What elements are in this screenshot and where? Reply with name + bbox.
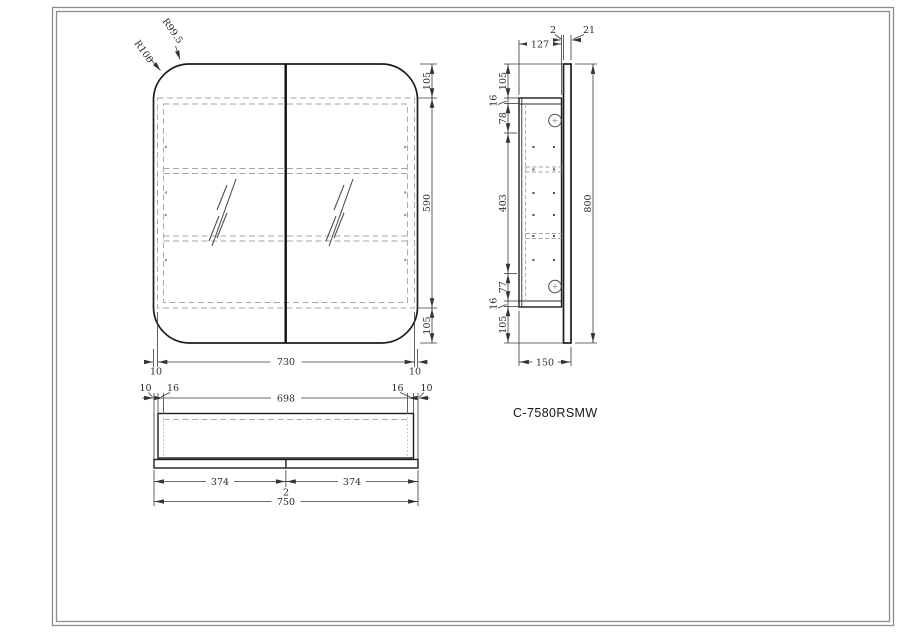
dim-bottom-wall-left: 16 (167, 383, 179, 394)
side-top-dimensions: 127 2 21 (519, 25, 595, 95)
model-number-label: C-7580RSMW (513, 406, 598, 420)
side-view: 127 2 21 105 (489, 25, 598, 369)
hinge-circle-bottom (549, 280, 562, 293)
bottom-view: 698 10 16 16 10 374 374 2 750 (139, 383, 432, 508)
frame-inner-border (57, 12, 890, 622)
dim-side-c2: 16 (489, 95, 500, 107)
dim-bottom-inner-width: 698 (277, 394, 295, 405)
side-shelf-upper (526, 167, 561, 172)
dim-front-gap-left: 10 (150, 367, 162, 378)
dim-bottom-wall-right: 16 (391, 383, 403, 394)
side-pin-holes (532, 146, 555, 261)
dim-side-c5: 77 (498, 281, 509, 293)
dim-front-opening-height: 590 (422, 194, 433, 212)
dim-bottom-door-right: 374 (343, 477, 361, 488)
dim-bottom-door-left: 374 (211, 477, 229, 488)
dim-bottom-gap-right: 10 (420, 383, 432, 394)
side-height-dimension: 800 (575, 64, 597, 343)
technical-drawing: R100 R99.5 105 590 105 (0, 0, 900, 638)
dim-front-body-width: 730 (277, 357, 295, 368)
drawing-frame (53, 8, 894, 626)
hinge-circle-top (549, 114, 562, 127)
dim-bottom-gap-left: 10 (139, 383, 151, 394)
dim-side-c1: 105 (498, 72, 509, 90)
dim-radius-inner: R99.5 (160, 16, 185, 46)
dim-side-c4: 403 (498, 194, 509, 212)
bottom-body-outline (158, 414, 414, 459)
bottom-top-dimensions: 698 10 16 16 10 (139, 383, 432, 460)
dim-side-gap: 2 (550, 25, 556, 36)
dim-side-c3: 78 (498, 112, 509, 124)
r99-leader (176, 46, 181, 60)
drawing-canvas: R100 R99.5 105 590 105 (0, 0, 900, 638)
bottom-lower-dimensions: 374 374 2 750 (154, 470, 418, 508)
dim-side-c6: 16 (489, 298, 500, 310)
side-door-panel (564, 64, 572, 343)
dim-side-door-thickness: 21 (583, 25, 595, 36)
frame-outer-border (53, 8, 894, 626)
dim-side-body-depth: 127 (531, 40, 549, 51)
dim-front-bottom-margin: 105 (422, 316, 433, 334)
front-radius-callouts: R100 R99.5 (132, 16, 185, 70)
front-right-dimension-chain: 105 590 105 (417, 64, 438, 343)
dim-radius-outer: R100 (132, 38, 156, 65)
dim-side-c7: 105 (498, 316, 509, 334)
dim-front-gap-right: 10 (409, 367, 421, 378)
side-shelf-lower (526, 234, 561, 239)
dim-side-height: 800 (583, 194, 594, 212)
front-view: R100 R99.5 105 590 105 (132, 16, 437, 377)
dim-bottom-overall-width: 750 (277, 497, 295, 508)
dim-front-top-margin: 105 (422, 72, 433, 90)
dim-side-depth: 150 (536, 358, 554, 369)
